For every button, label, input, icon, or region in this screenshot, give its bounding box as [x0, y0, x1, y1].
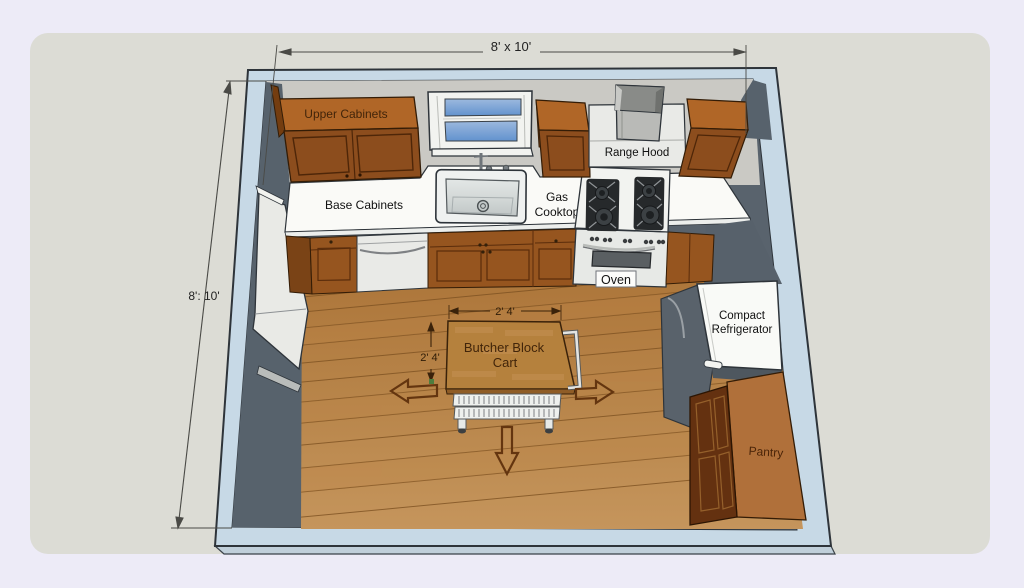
svg-text:8': 10': 8': 10' [188, 289, 219, 303]
svg-text:Cooktop: Cooktop [535, 205, 580, 219]
svg-text:Cart: Cart [493, 355, 518, 370]
svg-text:Compact: Compact [719, 310, 766, 322]
svg-text:Upper Cabinets: Upper Cabinets [304, 107, 387, 121]
svg-text:Gas: Gas [546, 190, 568, 204]
svg-text:8' x 10': 8' x 10' [491, 39, 531, 54]
svg-text:Pantry: Pantry [748, 444, 784, 460]
svg-text:Refrigerator: Refrigerator [712, 324, 773, 336]
svg-text:Oven: Oven [601, 273, 631, 287]
svg-text:Base Cabinets: Base Cabinets [325, 198, 403, 212]
svg-text:2' 4': 2' 4' [495, 306, 515, 318]
svg-text:Butcher Block: Butcher Block [464, 340, 545, 355]
svg-text:Range Hood: Range Hood [605, 147, 670, 159]
svg-text:2' 4': 2' 4' [420, 352, 440, 364]
